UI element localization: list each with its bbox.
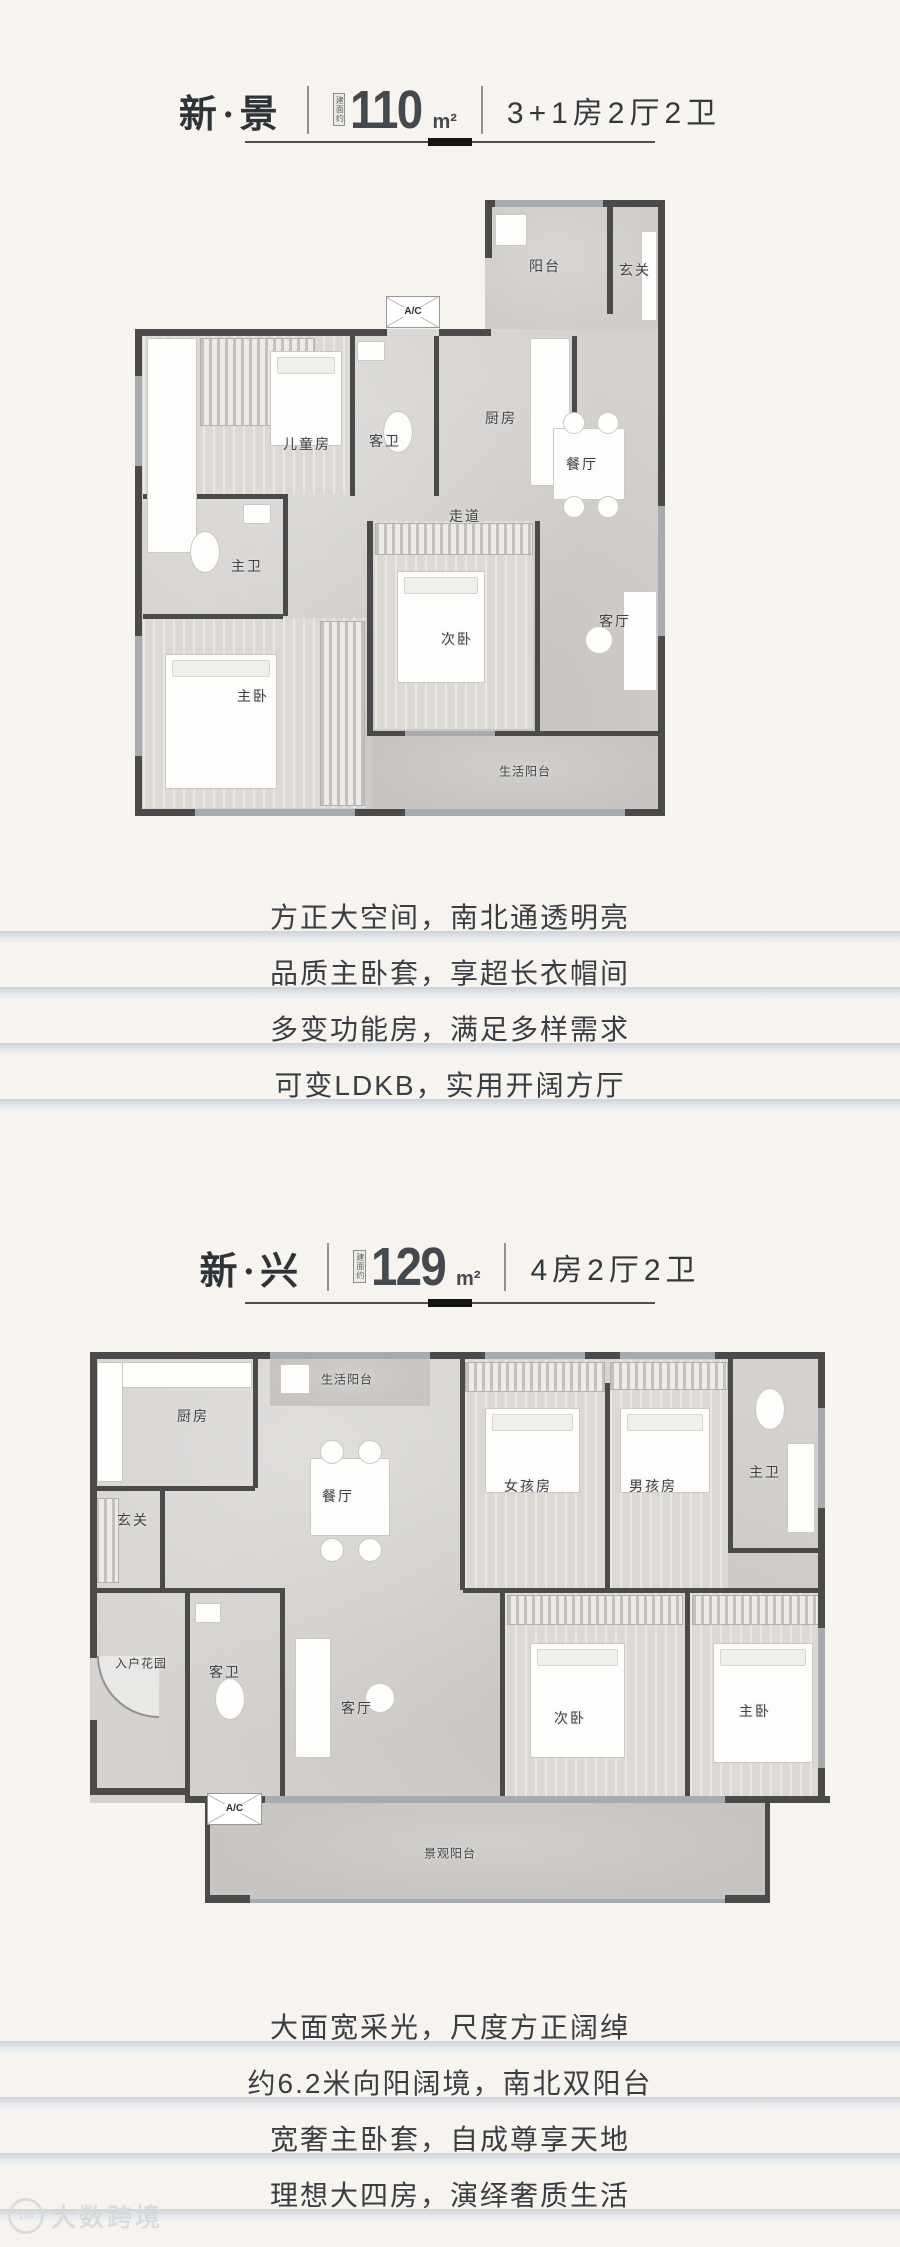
wall-segment (185, 1593, 190, 1796)
room-label: 次卧 (441, 629, 473, 649)
room-label: 景观阳台 (424, 1845, 476, 1862)
wall-segment (97, 1486, 255, 1491)
feature-line: 宽奢主卧套，自成尊享天地 (0, 2110, 900, 2166)
watermark-logo-icon: 100 (8, 2198, 44, 2234)
furniture (623, 591, 657, 691)
closet-hatch (375, 523, 533, 555)
plan1-title-row: 新·景 建面约 110 m² 3+1房2厅2卫 (0, 75, 900, 145)
closet-hatch (320, 621, 365, 806)
wall-segment (160, 1491, 165, 1591)
window-segment (658, 506, 665, 636)
window-segment (818, 1408, 825, 1508)
window-segment (135, 376, 142, 466)
plan2-floorplan: A/C 生活阳台厨房玄关餐厅女孩房男孩房主卫入户花园客卫客厅次卧主卧景观阳台 (65, 1348, 840, 1948)
wall-segment (434, 336, 439, 496)
room-label: 主卧 (237, 686, 269, 706)
feature-line: 多变功能房，满足多样需求 (0, 1000, 900, 1056)
title-separator (504, 1243, 506, 1291)
room-label: 女孩房 (504, 1476, 552, 1496)
plan2-area-prefix: 建面约 (353, 1250, 366, 1283)
ac-label: A/C (402, 307, 423, 317)
room-label: 生活阳台 (499, 763, 551, 780)
feature-line: 大面宽采光，尺度方正阔绰 (0, 1998, 900, 2054)
room-label: 客厅 (599, 611, 631, 631)
closet-hatch (610, 1362, 728, 1390)
furniture (357, 341, 385, 361)
wall-segment (485, 200, 492, 258)
furniture (597, 412, 619, 434)
furniture (358, 1440, 382, 1464)
furniture (563, 412, 585, 434)
closet-hatch (692, 1595, 822, 1625)
wall-segment (728, 1548, 825, 1553)
window-segment (405, 809, 625, 816)
flyer-canvas: 新·景 建面约 110 m² 3+1房2厅2卫 (0, 0, 900, 2247)
wall-segment (90, 1352, 97, 1658)
plan1-area-unit: m² (432, 112, 456, 132)
furniture (295, 1638, 331, 1758)
feature-line: 方正大空间，南北通透明亮 (0, 888, 900, 944)
wall-segment (90, 1720, 97, 1795)
plan2-title-divider (245, 1302, 655, 1304)
plan2-feature-list: 大面宽采光，尺度方正阔绰约6.2米向阳阔境，南北双阳台宽奢主卧套，自成尊享天地理… (0, 1998, 900, 2222)
window-segment (195, 809, 355, 816)
room-label: 餐厅 (566, 454, 598, 474)
room-label: 次卧 (554, 1708, 586, 1728)
room-label: 走道 (449, 506, 481, 526)
wall-segment (500, 1593, 505, 1796)
window-segment (405, 731, 495, 736)
plan2-area-unit: m² (456, 1269, 480, 1289)
furniture (280, 1364, 310, 1394)
plan2-title-row: 新·兴 建面约 129 m² 4房2厅2卫 (0, 1232, 900, 1302)
plan1-area-prefix: 建面约 (333, 93, 346, 126)
plan2-area-value: 129 (371, 1245, 445, 1289)
window-segment (265, 1796, 725, 1803)
furniture (147, 338, 197, 553)
closet-hatch (465, 1362, 605, 1392)
wall-segment (658, 200, 665, 331)
room-label: 儿童房 (283, 434, 331, 454)
plan2-spec: 4房2厅2卫 (530, 1245, 700, 1289)
feature-line: 约6.2米向阳阔境，南北双阳台 (0, 2054, 900, 2110)
plan1-ac-unit: A/C (386, 296, 440, 328)
furniture (190, 531, 220, 573)
title-separator (307, 86, 309, 134)
floor-area (205, 1803, 770, 1901)
window-segment (818, 1628, 825, 1768)
wall-segment (253, 1358, 258, 1488)
furniture (563, 496, 585, 518)
plan1-spec: 3+1房2厅2卫 (507, 88, 721, 132)
wall-segment (190, 1588, 282, 1593)
room-label: 玄关 (117, 1510, 149, 1530)
furniture (755, 1388, 785, 1430)
wall-segment (725, 1895, 770, 1903)
plan1-feature-list: 方正大空间，南北通透明亮品质主卧套，享超长衣帽间多变功能房，满足多样需求可变LD… (0, 888, 900, 1112)
watermark: 100 大数跨境 (8, 2198, 163, 2234)
room-label: 生活阳台 (321, 1371, 373, 1388)
furniture (787, 1443, 815, 1533)
wall-segment (535, 521, 540, 734)
wall-segment (143, 614, 283, 619)
room-label: 主卧 (739, 1701, 771, 1721)
window-segment (485, 1352, 585, 1359)
window-segment (620, 1352, 715, 1359)
wall-segment (463, 1588, 825, 1593)
room-label: 男孩房 (629, 1476, 677, 1496)
plan2-name: 新·兴 (199, 1240, 303, 1295)
window-segment (135, 636, 142, 756)
furniture (358, 1538, 382, 1562)
furniture (195, 1603, 221, 1623)
furniture (530, 1643, 625, 1758)
furniture (397, 571, 485, 683)
wall-segment (205, 1895, 250, 1903)
furniture (320, 1440, 344, 1464)
plan2-ac-unit: A/C (207, 1793, 262, 1825)
wall-segment (460, 1358, 465, 1590)
wall-segment (280, 1588, 285, 1796)
room-label: 客卫 (369, 431, 401, 451)
room-label: 玄关 (619, 260, 651, 280)
room-label: 厨房 (177, 1406, 209, 1426)
plan1-floorplan: A/C 阳台玄关儿童房客卫厨房餐厅走道主卫次卧客厅主卧生活阳台 (135, 186, 665, 816)
room-label: 主卫 (749, 1462, 781, 1482)
furniture (495, 214, 527, 246)
closet-hatch (95, 1498, 119, 1583)
title-separator (481, 86, 483, 134)
wall-segment (439, 329, 491, 336)
furniture (97, 1362, 123, 1482)
feature-line: 品质主卧套，享超长衣帽间 (0, 944, 900, 1000)
feature-line: 可变LDKB，实用开阔方厅 (0, 1056, 900, 1112)
watermark-brand: 大数跨境 (51, 2198, 163, 2234)
wall-segment (572, 336, 577, 421)
wall-segment (367, 521, 373, 734)
plan1-area-value: 110 (350, 88, 421, 132)
plan1-area-group: 建面约 110 m² (333, 88, 457, 132)
room-label: 客厅 (341, 1698, 373, 1718)
plan1-title-divider (245, 141, 655, 143)
wall-segment (607, 204, 613, 314)
wall-segment (95, 1588, 190, 1593)
room-label: 客卫 (209, 1662, 241, 1682)
wall-segment (728, 1358, 733, 1553)
wall-segment (90, 1788, 190, 1795)
furniture (320, 1538, 344, 1562)
wall-segment (350, 336, 355, 496)
closet-hatch (507, 1595, 683, 1625)
furniture (165, 654, 277, 789)
furniture (270, 351, 342, 446)
wall-segment (765, 1803, 770, 1903)
window-segment (205, 1899, 770, 1903)
furniture (215, 1678, 245, 1720)
room-label: 主卫 (231, 556, 263, 576)
room-label: 入户花园 (115, 1655, 167, 1672)
ac-label: A/C (224, 1804, 245, 1814)
window-segment (495, 200, 603, 207)
room-label: 餐厅 (322, 1486, 354, 1506)
title-separator (327, 1243, 329, 1291)
furniture (597, 496, 619, 518)
wall-segment (135, 329, 387, 336)
plan2-area-group: 建面约 129 m² (353, 1245, 480, 1289)
window-segment (270, 1352, 430, 1359)
room-label: 厨房 (485, 408, 517, 428)
wall-segment (283, 494, 288, 616)
wall-segment (605, 1383, 610, 1588)
furniture (243, 504, 271, 524)
room-label: 阳台 (529, 256, 561, 276)
wall-segment (685, 1593, 690, 1796)
plan1-name: 新·景 (179, 83, 283, 138)
